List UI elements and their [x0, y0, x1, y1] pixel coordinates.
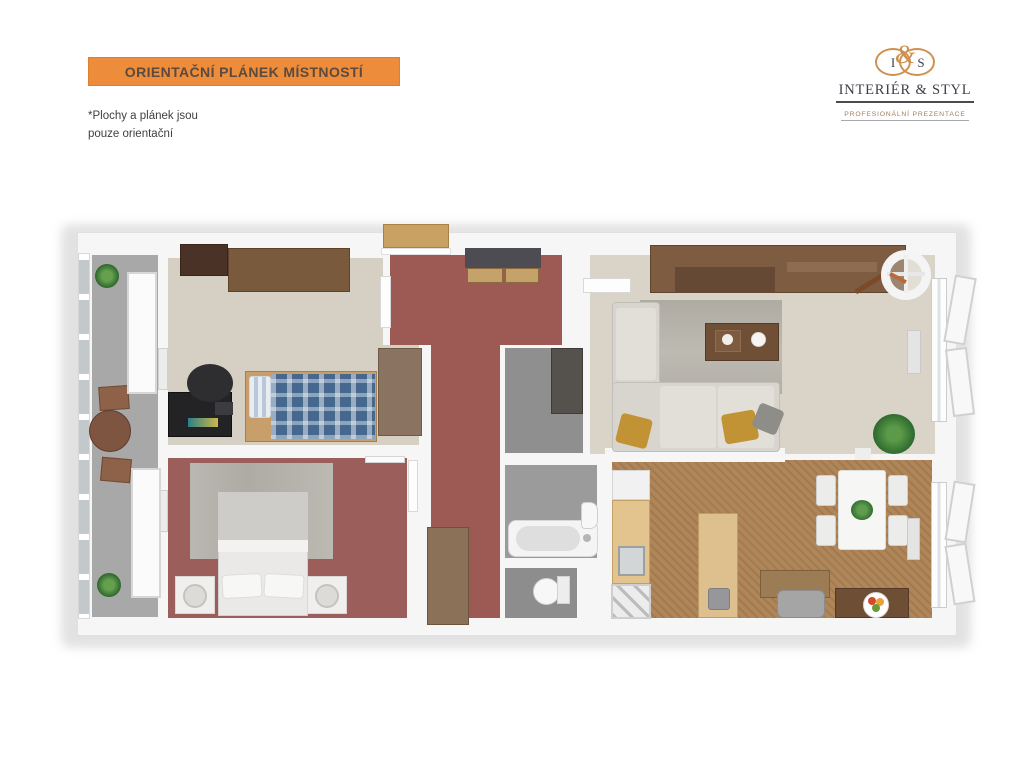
shoe-bench-seat-2	[505, 268, 539, 283]
note-line-2: pouze orientační	[88, 126, 198, 144]
kitchen-stove	[611, 584, 651, 619]
bedroom1-office-chair	[187, 364, 233, 402]
balcony-plant-top	[95, 264, 119, 288]
sofa-chaise-cushion	[616, 308, 656, 380]
balcony-chair-2	[100, 457, 132, 484]
ceiling-fan-blade-2	[904, 255, 908, 293]
logo-monogram: I & S	[836, 44, 974, 80]
bedroom1-bed-plaid	[271, 374, 375, 439]
coffee-machine	[708, 588, 730, 610]
living-plant	[873, 414, 915, 454]
toilet-bowl	[533, 578, 560, 605]
dining-chair-3	[888, 475, 908, 506]
kitchen-sink	[618, 546, 645, 576]
logo-tagline: PROFESIONÁLNÍ PREZENTACE	[841, 111, 968, 121]
wall-unit-light-shelf	[787, 262, 877, 272]
balcony-railing	[78, 253, 90, 619]
hall-cabinet	[427, 527, 469, 625]
bedroom1-laptop	[215, 402, 233, 415]
bedroom1-door-open	[380, 276, 391, 328]
company-logo: I & S INTERIÉR & STYL PROFESIONÁLNÍ PREZ…	[836, 44, 974, 121]
dining-chair-1	[816, 475, 836, 506]
balcony-plant-bottom	[97, 573, 121, 597]
balcony-table	[89, 410, 131, 452]
fruit-green	[872, 604, 880, 612]
bedroom1-wardrobe-right	[378, 348, 422, 436]
master-blanket	[218, 492, 308, 540]
storage-cabinet	[551, 348, 583, 414]
balcony-door-open-2	[131, 468, 161, 598]
bedroom1-wall-shelf	[180, 244, 228, 276]
sofa-cushion-1	[660, 386, 716, 448]
teapot	[751, 332, 766, 347]
master-lamp-left	[183, 584, 207, 608]
page-title: ORIENTAČNÍ PLÁNEK MÍSTNOSTÍ	[125, 64, 363, 80]
wash-basin	[581, 502, 598, 529]
title-banner: ORIENTAČNÍ PLÁNEK MÍSTNOSTÍ	[88, 57, 400, 86]
logo-name: INTERIÉR & STYL	[836, 82, 974, 103]
bedroom1-pillow	[249, 376, 271, 418]
kitchen-radiator	[907, 518, 920, 560]
note-line-1: *Plochy a plánek jsou	[88, 108, 198, 126]
living-door-open	[583, 278, 631, 293]
kitchen-tall-cabinet	[612, 470, 650, 500]
divider-stub	[855, 448, 871, 460]
shoe-bench-seat-1	[467, 268, 503, 283]
living-radiator	[907, 330, 921, 374]
wall-unit-dark-section	[675, 267, 775, 293]
page: ORIENTAČNÍ PLÁNEK MÍSTNOSTÍ *Plochy a pl…	[0, 0, 1024, 768]
entrance-door-open	[383, 224, 449, 248]
bathtub-inner	[516, 526, 580, 551]
bedroom1-wardrobe-top	[228, 248, 350, 292]
kitchen-desk-chair	[777, 590, 825, 618]
dining-centerpiece-plant	[851, 500, 873, 520]
bathtub-tap	[583, 534, 591, 542]
master-pillow-2	[263, 573, 304, 599]
master-lamp-right	[315, 584, 339, 608]
master-door-open	[408, 460, 418, 512]
master-coat-rack	[365, 456, 405, 463]
entrance-door-frame	[381, 248, 451, 255]
logo-ampersand-icon: &	[895, 40, 915, 70]
shoe-bench-top	[465, 248, 541, 268]
master-blanket-fold	[218, 540, 308, 552]
floorplan	[75, 220, 960, 652]
toilet-tank	[557, 576, 570, 604]
bedroom1-desk-pad	[188, 418, 218, 427]
coffee-cup-1	[722, 334, 733, 345]
bedroom1-radiator	[158, 348, 168, 390]
dining-chair-4	[888, 515, 908, 546]
disclaimer-note: *Plochy a plánek jsou pouze orientační	[88, 108, 198, 144]
balcony-chair-1	[98, 385, 130, 411]
dining-chair-2	[816, 515, 836, 546]
master-pillow-1	[221, 573, 262, 599]
balcony-door-open-1	[127, 272, 157, 394]
